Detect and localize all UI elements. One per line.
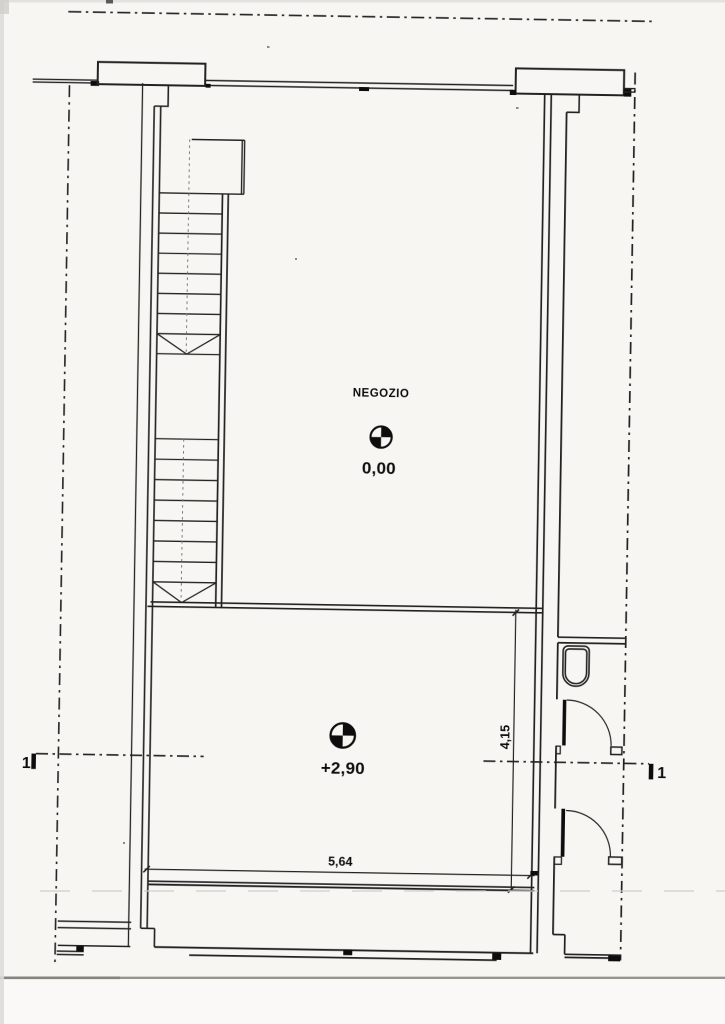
- svg-text:0,00: 0,00: [362, 459, 396, 479]
- svg-text:1: 1: [657, 765, 666, 782]
- svg-text:NEGOZIO: NEGOZIO: [353, 387, 410, 400]
- svg-text:1: 1: [22, 755, 31, 772]
- svg-text:4,15: 4,15: [498, 725, 512, 750]
- svg-text:+2,90: +2,90: [321, 758, 365, 778]
- svg-text:5,64: 5,64: [328, 854, 353, 868]
